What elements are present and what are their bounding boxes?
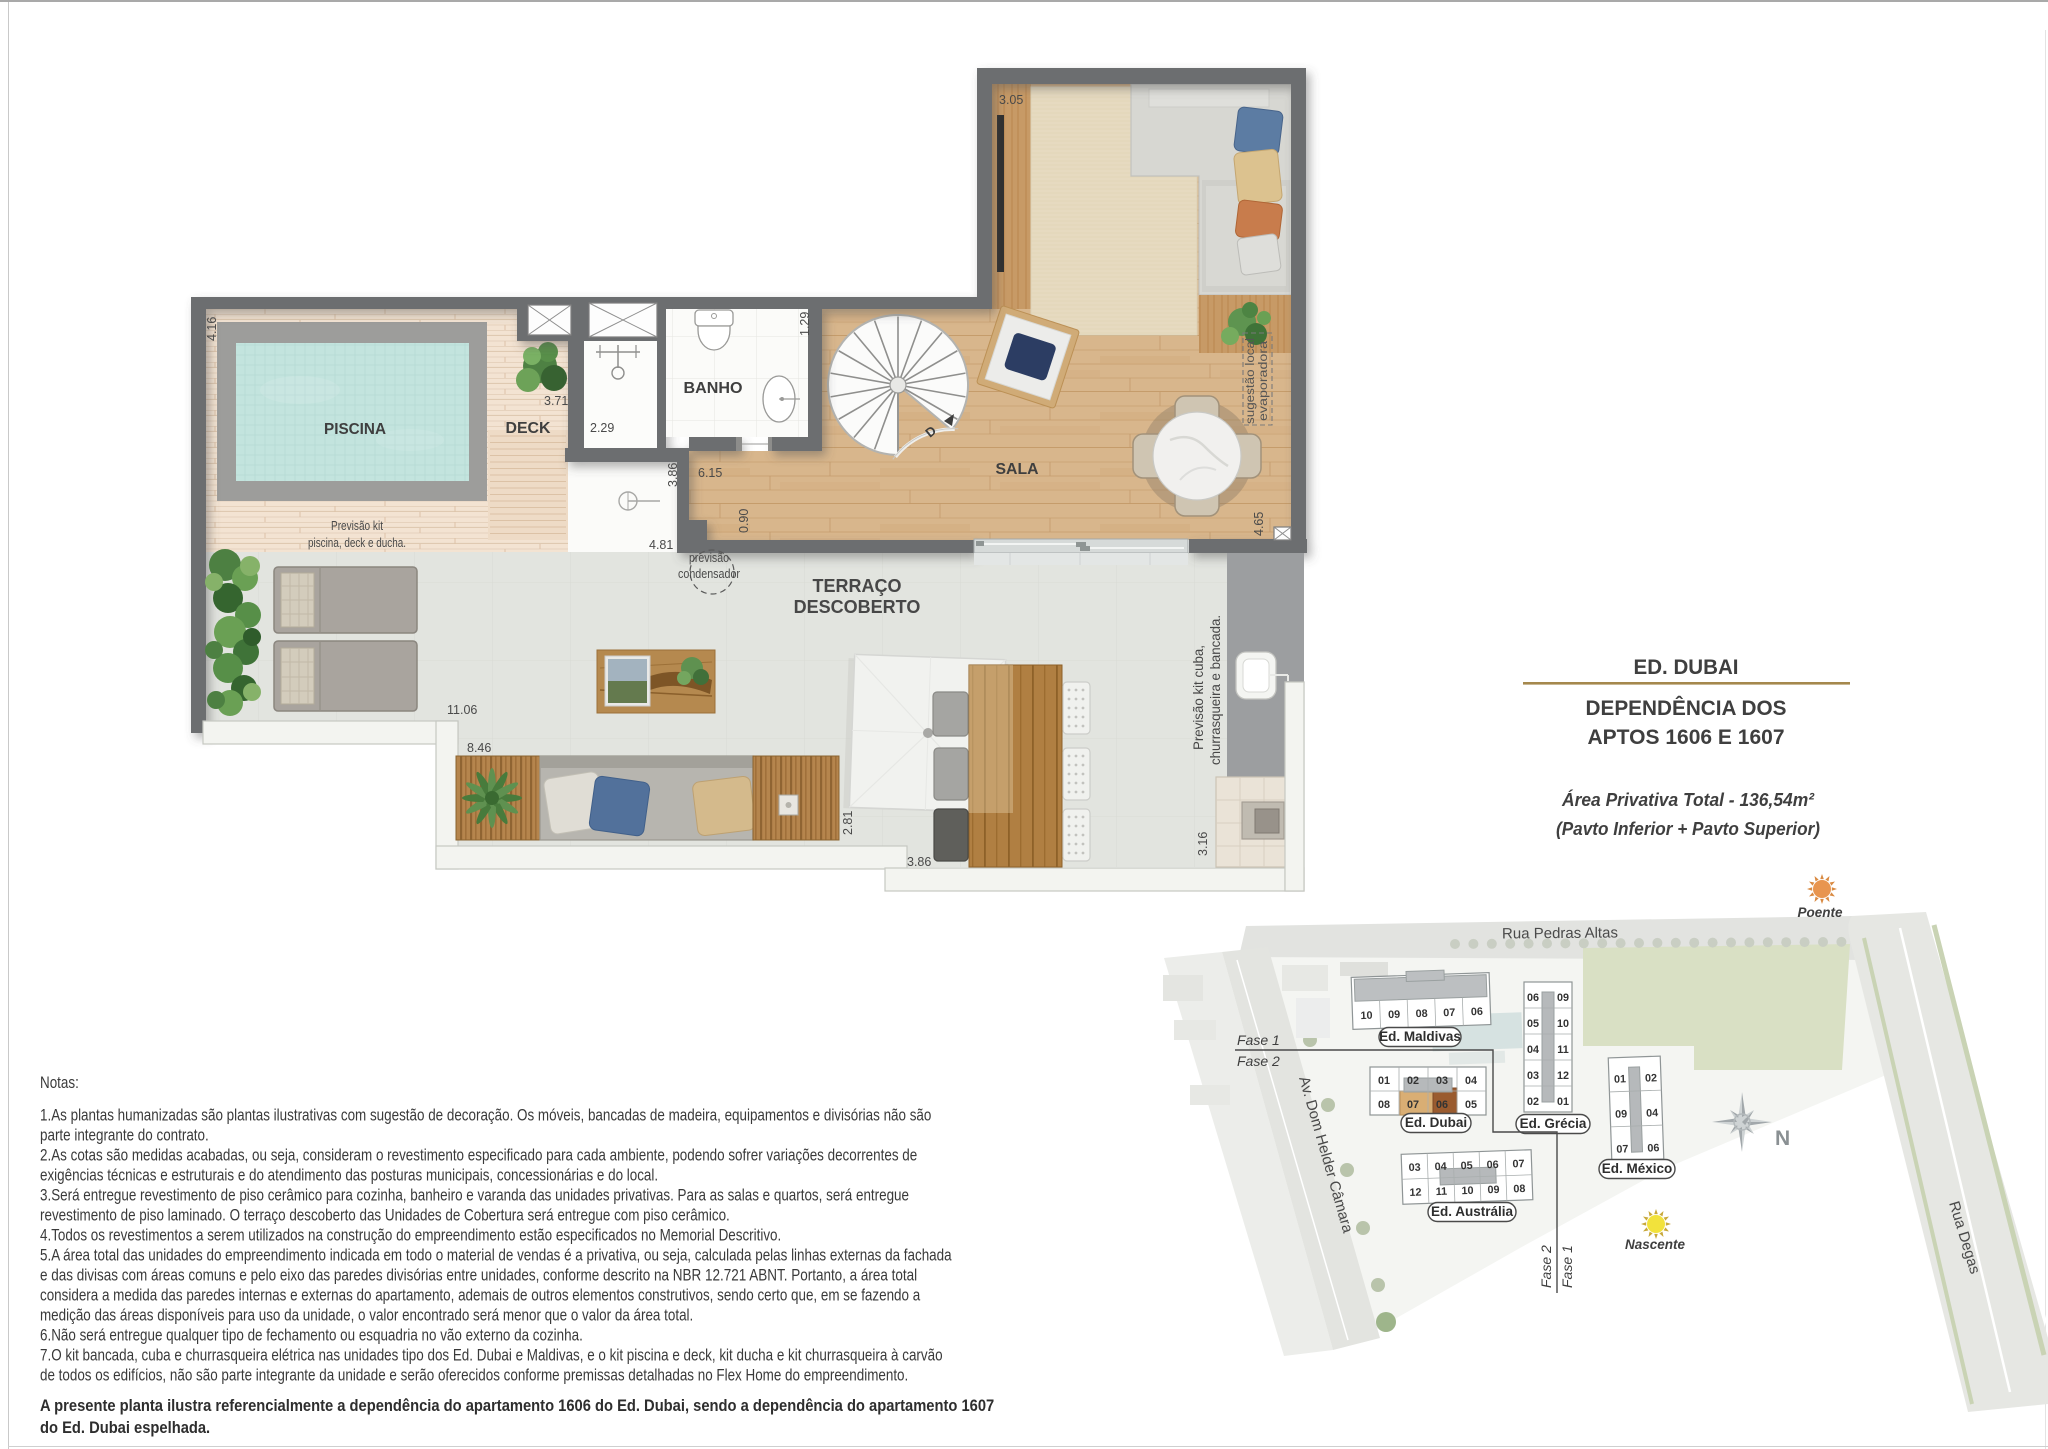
svg-text:N: N xyxy=(1775,1127,1790,1150)
svg-text:Rua Pedras Altas: Rua Pedras Altas xyxy=(1502,924,1618,942)
svg-text:ED. DUBAI: ED. DUBAI xyxy=(1634,656,1739,679)
svg-text:06: 06 xyxy=(1527,992,1539,1004)
svg-text:06: 06 xyxy=(1436,1099,1448,1111)
svg-text:3.Será entregue revestimento d: 3.Será entregue revestimento de piso cer… xyxy=(40,1186,909,1205)
svg-text:3.05: 3.05 xyxy=(999,93,1023,107)
svg-text:Fase 2: Fase 2 xyxy=(1538,1245,1554,1288)
svg-text:3.16: 3.16 xyxy=(1196,832,1210,856)
svg-text:09: 09 xyxy=(1388,1009,1400,1021)
svg-text:Área Privativa Total - 136,54m: Área Privativa Total - 136,54m² xyxy=(1561,789,1815,810)
svg-text:8.46: 8.46 xyxy=(467,741,491,755)
svg-text:DEPENDÊNCIA DOS: DEPENDÊNCIA DOS xyxy=(1586,696,1787,720)
svg-text:DESCOBERTO: DESCOBERTO xyxy=(794,597,921,617)
svg-text:06: 06 xyxy=(1486,1159,1498,1171)
svg-text:Previsão kit cuba,: Previsão kit cuba, xyxy=(1191,645,1206,750)
svg-text:04: 04 xyxy=(1527,1044,1539,1056)
svg-text:3.71: 3.71 xyxy=(544,394,568,408)
svg-text:de todos os edifícios, não são: de todos os edifícios, não são parte int… xyxy=(40,1366,908,1385)
svg-text:05: 05 xyxy=(1527,1018,1539,1030)
svg-text:06: 06 xyxy=(1471,1006,1483,1018)
svg-text:04: 04 xyxy=(1434,1161,1446,1173)
svg-text:Ed. Grécia: Ed. Grécia xyxy=(1520,1116,1587,1131)
svg-text:revestimento de piso laminado.: revestimento de piso laminado. O terraço… xyxy=(40,1206,730,1225)
svg-text:4.65: 4.65 xyxy=(1252,512,1266,536)
svg-text:Ed. Austrália: Ed. Austrália xyxy=(1431,1204,1514,1219)
svg-text:1.29: 1.29 xyxy=(798,312,812,336)
svg-text:Poente: Poente xyxy=(1797,905,1843,920)
svg-text:medição das áreas disponíveis: medição das áreas disponíveis para uso d… xyxy=(40,1306,693,1325)
svg-text:3.86: 3.86 xyxy=(666,463,680,487)
svg-text:DECK: DECK xyxy=(506,420,551,437)
svg-text:BANHO: BANHO xyxy=(684,380,743,397)
svg-text:A presente planta ilustra refe: A presente planta ilustra referencialmen… xyxy=(40,1396,994,1415)
svg-text:01: 01 xyxy=(1614,1073,1626,1085)
svg-text:07: 07 xyxy=(1407,1099,1419,1111)
svg-text:07: 07 xyxy=(1616,1143,1628,1155)
svg-text:do Ed. Dubai espelhada.: do Ed. Dubai espelhada. xyxy=(40,1418,210,1437)
svg-text:piscina, deck e ducha.: piscina, deck e ducha. xyxy=(308,535,406,550)
svg-text:6.Não será entregue qualquer t: 6.Não será entregue qualquer tipo de fec… xyxy=(40,1326,583,1345)
svg-text:02: 02 xyxy=(1527,1096,1539,1108)
svg-text:4.16: 4.16 xyxy=(205,317,219,341)
svg-text:Notas:: Notas: xyxy=(40,1073,79,1092)
svg-text:SALA: SALA xyxy=(996,461,1039,478)
svg-text:condensador: condensador xyxy=(678,567,740,581)
svg-text:08: 08 xyxy=(1513,1183,1525,1195)
svg-text:06: 06 xyxy=(1647,1142,1659,1154)
svg-text:09: 09 xyxy=(1487,1184,1499,1196)
svg-text:11: 11 xyxy=(1557,1044,1568,1056)
svg-text:2.29: 2.29 xyxy=(590,421,614,435)
svg-text:Fase 1: Fase 1 xyxy=(1237,1032,1280,1048)
svg-text:Ed. México: Ed. México xyxy=(1602,1161,1673,1176)
svg-text:02: 02 xyxy=(1407,1075,1419,1087)
svg-text:parte integrante do contrato.: parte integrante do contrato. xyxy=(40,1126,209,1145)
svg-text:11: 11 xyxy=(1436,1186,1448,1198)
svg-text:Previsão kit: Previsão kit xyxy=(331,518,383,533)
svg-text:03: 03 xyxy=(1436,1075,1448,1087)
svg-text:PISCINA: PISCINA xyxy=(324,421,386,438)
svg-text:5.A área total das unidades do: 5.A área total das unidades do empreendi… xyxy=(40,1246,952,1265)
svg-text:TERRAÇO: TERRAÇO xyxy=(813,576,902,596)
svg-text:12: 12 xyxy=(1557,1070,1569,1082)
svg-text:07: 07 xyxy=(1512,1158,1524,1170)
svg-text:previsão: previsão xyxy=(689,551,729,565)
svg-text:3.86: 3.86 xyxy=(907,855,931,869)
svg-text:APTOS 1606 E 1607: APTOS 1606 E 1607 xyxy=(1588,726,1785,749)
svg-text:Ed. Maldivas: Ed. Maldivas xyxy=(1379,1029,1461,1044)
svg-text:09: 09 xyxy=(1615,1108,1627,1120)
svg-text:7.O kit bancada, cuba e churra: 7.O kit bancada, cuba e churrasqueira el… xyxy=(40,1346,943,1365)
svg-text:10: 10 xyxy=(1360,1010,1372,1022)
svg-text:08: 08 xyxy=(1415,1008,1427,1020)
svg-text:10: 10 xyxy=(1461,1185,1473,1197)
svg-text:Fase 1: Fase 1 xyxy=(1559,1245,1575,1288)
svg-text:considera a medida das paredes: considera a medida das paredes internas … xyxy=(40,1286,921,1305)
svg-text:11.06: 11.06 xyxy=(447,703,477,717)
svg-text:6.15: 6.15 xyxy=(698,466,722,480)
svg-text:01: 01 xyxy=(1378,1075,1390,1087)
svg-text:05: 05 xyxy=(1465,1099,1477,1111)
svg-text:0.90: 0.90 xyxy=(737,509,751,533)
svg-text:Nascente: Nascente xyxy=(1625,1237,1686,1252)
svg-text:4.81: 4.81 xyxy=(649,538,673,552)
svg-text:08: 08 xyxy=(1378,1099,1390,1111)
svg-text:exigências técnicas e estrutur: exigências técnicas e estruturais e do a… xyxy=(40,1166,658,1185)
svg-text:02: 02 xyxy=(1645,1072,1657,1084)
svg-text:e das divisas com áreas comuns: e das divisas com áreas comuns e pelo ei… xyxy=(40,1266,917,1285)
svg-text:07: 07 xyxy=(1443,1007,1455,1019)
svg-text:10: 10 xyxy=(1557,1018,1569,1030)
svg-text:04: 04 xyxy=(1465,1075,1477,1087)
svg-text:sugestão local: sugestão local xyxy=(1245,338,1257,424)
svg-text:evaporadora: evaporadora xyxy=(1258,340,1270,421)
svg-text:Ed. Dubai: Ed. Dubai xyxy=(1405,1115,1467,1130)
svg-text:12: 12 xyxy=(1409,1187,1421,1199)
svg-text:03: 03 xyxy=(1527,1070,1539,1082)
svg-text:1.As plantas humanizadas são p: 1.As plantas humanizadas são plantas ilu… xyxy=(40,1106,931,1125)
svg-text:05: 05 xyxy=(1460,1160,1472,1172)
svg-text:(Pavto Inferior + Pavto Superi: (Pavto Inferior + Pavto Superior) xyxy=(1556,818,1820,839)
svg-text:03: 03 xyxy=(1408,1162,1420,1174)
svg-text:2.81: 2.81 xyxy=(841,811,855,835)
svg-text:04: 04 xyxy=(1646,1107,1658,1119)
svg-text:2.As cotas são medidas acabada: 2.As cotas são medidas acabadas, ou seja… xyxy=(40,1146,917,1165)
svg-text:churrasqueira e bancada.: churrasqueira e bancada. xyxy=(1208,615,1223,765)
svg-text:Fase 2: Fase 2 xyxy=(1237,1053,1280,1069)
svg-text:4.Todos os revestimentos a ser: 4.Todos os revestimentos a serem utiliza… xyxy=(40,1226,781,1245)
svg-text:01: 01 xyxy=(1557,1096,1569,1108)
svg-text:09: 09 xyxy=(1557,992,1569,1004)
